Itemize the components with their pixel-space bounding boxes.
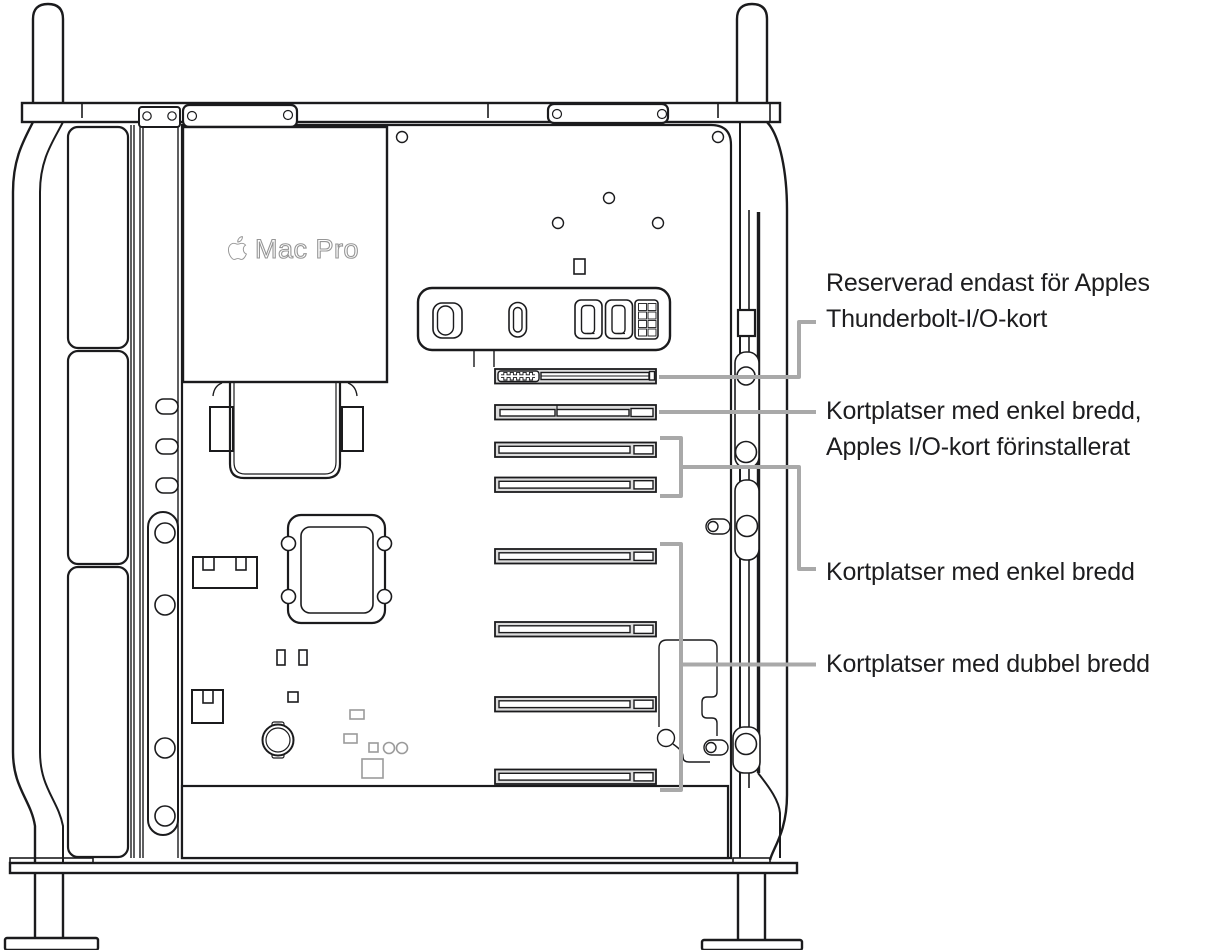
power-supply [183,127,387,478]
callout-label-line: Apples I/O-kort förinstallerat [826,429,1141,465]
device-logo-text: Mac Pro [255,234,359,265]
pcie-slot-8 [495,770,656,785]
bracket-single-width [660,438,681,496]
board-components [192,557,408,778]
io-port-panel [418,288,670,367]
callout-label-line: Thunderbolt-I/O-kort [826,301,1150,337]
callout-label-single-width: Kortplatser med enkel bredd [826,554,1135,590]
pcie-slot-6 [495,622,656,637]
callout-label-line: Reserverad endast för Apples [826,265,1150,301]
callout-label-thunderbolt: Reserverad endast för Apples Thunderbolt… [826,265,1150,337]
device-logo: Mac Pro [226,234,359,265]
pcie-slot-2 [495,405,656,420]
pcie-slot-3 [495,443,656,458]
callout-label-line: Kortplatser med enkel bredd, [826,393,1141,429]
callout-label-line: Kortplatser med dubbel bredd [826,646,1150,682]
pcie-slot-5 [495,549,656,564]
pcie-slot-7 [495,697,656,712]
pcie-slots [495,369,656,784]
left-edge-details [148,399,178,835]
callout-label-line: Kortplatser med enkel bredd [826,554,1135,590]
mac-pro-diagram: Mac Pro Reserverad endast för Apples Thu… [0,0,1232,950]
pcie-slot-4 [495,478,656,493]
callout-label-double-width: Kortplatser med dubbel bredd [826,646,1150,682]
apple-logo-icon [226,236,248,263]
mac-pro-illustration [0,0,1232,950]
capacitor [263,722,294,758]
cpu-bracket [282,515,392,623]
callout-label-single-preinstalled: Kortplatser med enkel bredd, Apples I/O-… [826,393,1141,465]
bottom-panel [182,786,728,858]
bracket-double-width [660,544,681,790]
pcie-slot-1-thunderbolt [495,369,656,384]
left-side-panels [68,125,143,858]
